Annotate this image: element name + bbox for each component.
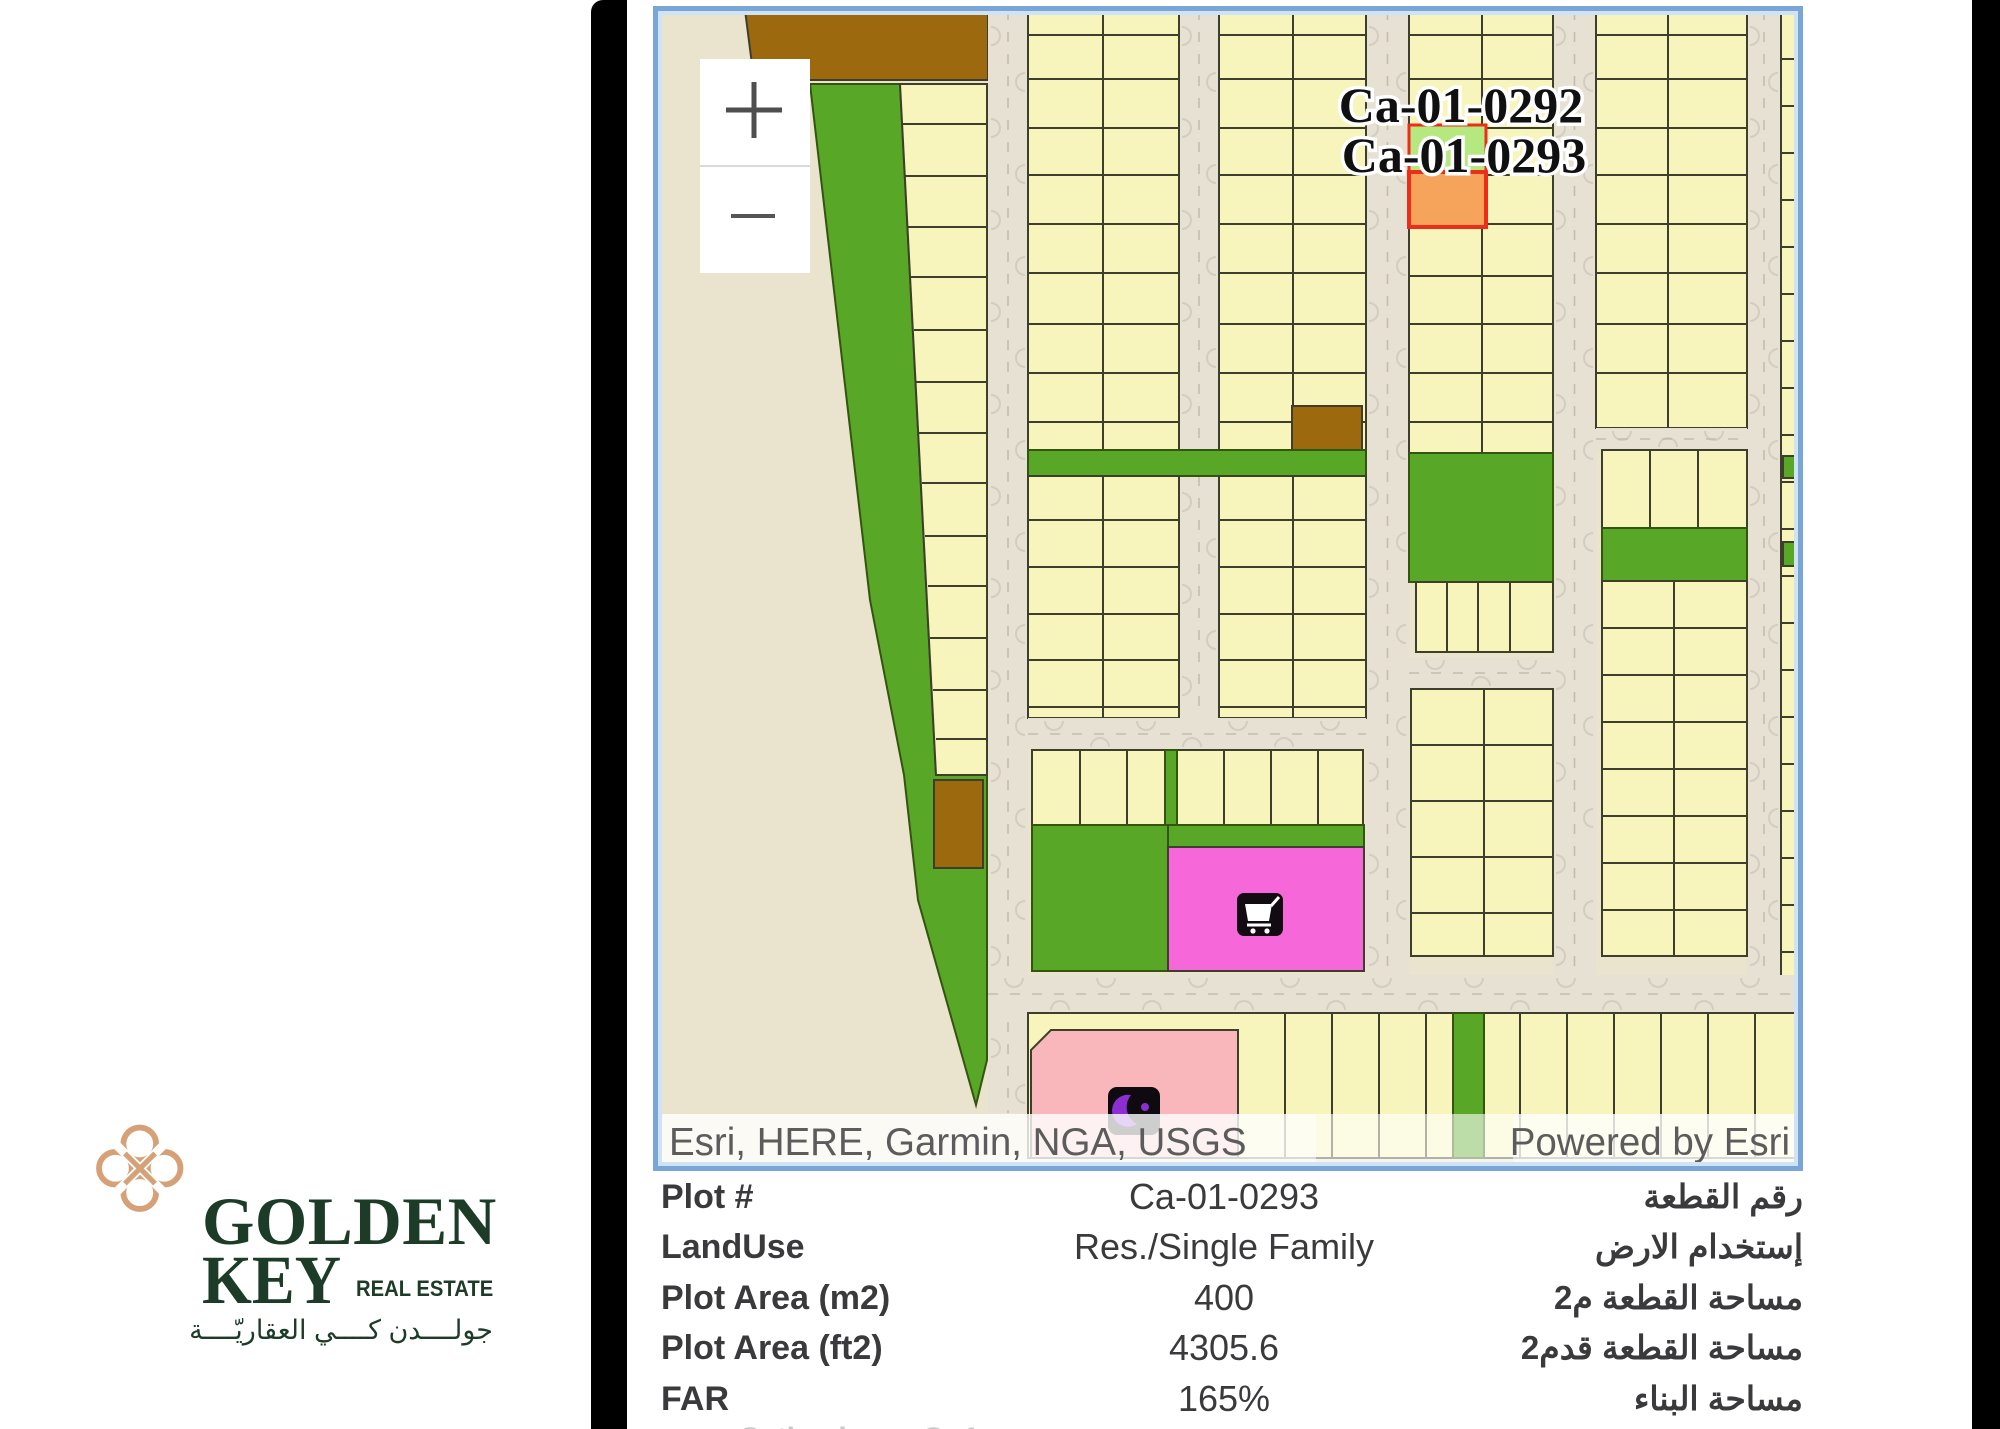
svg-text:Ca-01-0292: Ca-01-0292 [1339,77,1583,133]
svg-text:Powered by Esri: Powered by Esri [1510,1121,1790,1164]
svg-text:Ca-01-0293: Ca-01-0293 [1342,127,1586,183]
svg-text:Esri, HERE, Garmin, NGA, USGS: Esri, HERE, Garmin, NGA, USGS [669,1121,1247,1164]
